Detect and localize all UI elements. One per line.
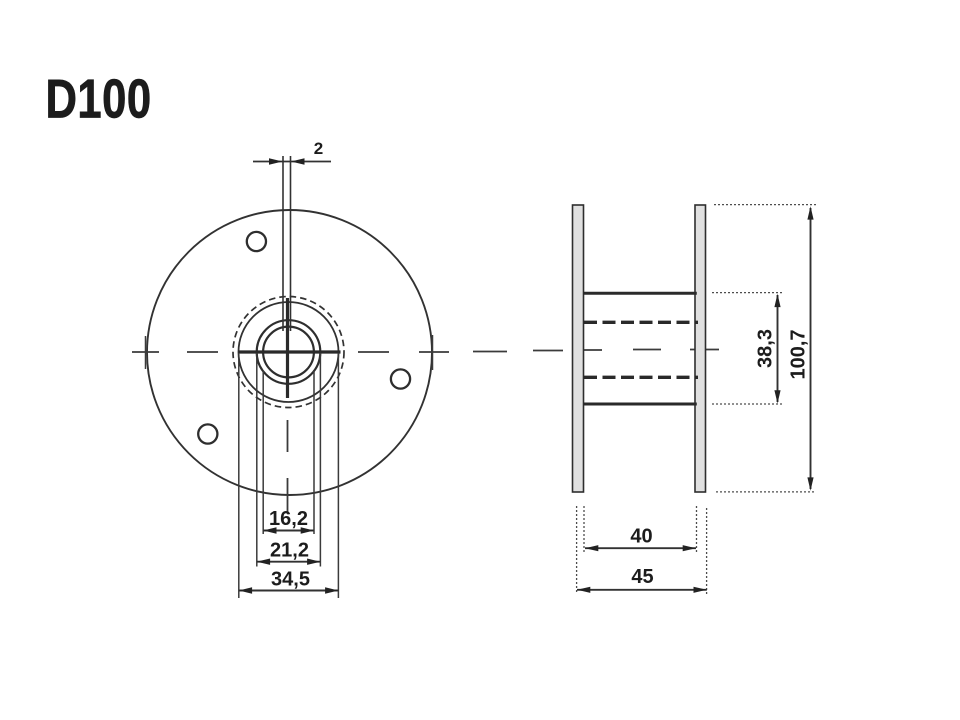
svg-text:2: 2 <box>314 139 323 158</box>
svg-text:100,7: 100,7 <box>788 329 810 379</box>
svg-text:45: 45 <box>631 566 653 588</box>
svg-text:40: 40 <box>630 526 652 548</box>
svg-text:38,3: 38,3 <box>755 329 777 368</box>
svg-text:21,2: 21,2 <box>270 540 309 562</box>
svg-text:16,2: 16,2 <box>269 508 308 530</box>
svg-text:D100: D100 <box>46 69 152 130</box>
svg-text:34,5: 34,5 <box>271 569 310 591</box>
